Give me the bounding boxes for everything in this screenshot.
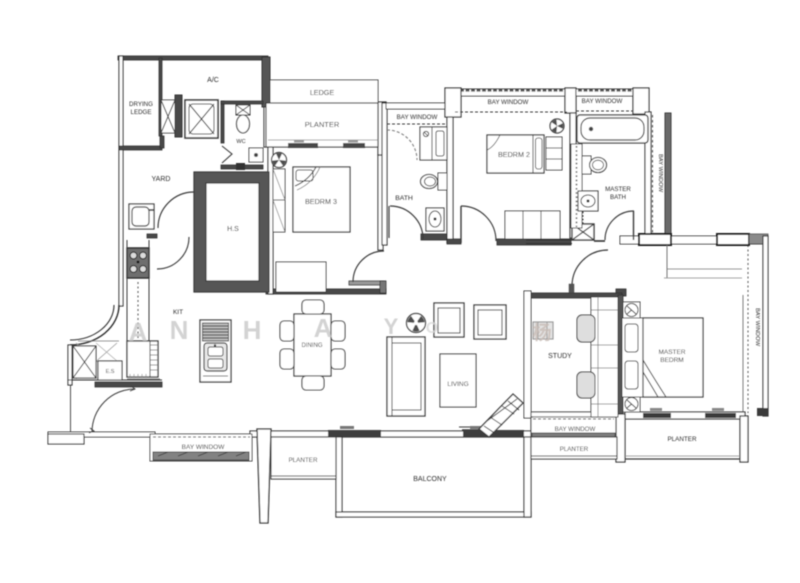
svg-text:MASTER: MASTER xyxy=(658,349,685,356)
svg-text:PLANTER: PLANTER xyxy=(667,436,696,443)
svg-text:BATH: BATH xyxy=(610,194,626,201)
svg-text:BAY WINDOW: BAY WINDOW xyxy=(182,444,226,451)
svg-text:DINING: DINING xyxy=(302,343,323,349)
svg-text:STUDY: STUDY xyxy=(548,353,572,360)
svg-text:A: A xyxy=(314,313,333,343)
svg-text:LEDGE: LEDGE xyxy=(310,88,335,97)
svg-text:H.S: H.S xyxy=(227,226,239,233)
svg-text:LEDGE: LEDGE xyxy=(131,109,152,116)
svg-text:A: A xyxy=(129,317,148,347)
svg-text:MASTER: MASTER xyxy=(605,186,631,193)
svg-text:BEDRM: BEDRM xyxy=(660,357,683,364)
svg-text:BATH: BATH xyxy=(395,195,413,202)
svg-text:PLANTER: PLANTER xyxy=(560,446,589,453)
svg-text:YARD: YARD xyxy=(152,176,171,183)
svg-text:BAY WINDOW: BAY WINDOW xyxy=(657,154,663,193)
svg-text:E.S: E.S xyxy=(106,369,115,375)
svg-text:H: H xyxy=(243,315,262,345)
svg-text:BEDRM 3: BEDRM 3 xyxy=(305,197,337,206)
svg-text:KIT: KIT xyxy=(173,309,183,316)
svg-text:杨: 杨 xyxy=(532,321,551,344)
svg-text:BAY WINDOW: BAY WINDOW xyxy=(754,308,760,347)
svg-text:Y: Y xyxy=(384,314,399,339)
svg-text:BAY WINDOW: BAY WINDOW xyxy=(582,98,623,105)
svg-text:O: O xyxy=(426,320,438,337)
svg-text:N: N xyxy=(170,315,189,345)
svg-text:BAY WINDOW: BAY WINDOW xyxy=(488,99,529,106)
svg-text:A/C: A/C xyxy=(207,77,219,84)
svg-text:BAY WINDOW: BAY WINDOW xyxy=(555,426,596,433)
svg-text:PLANTER: PLANTER xyxy=(288,457,317,464)
svg-text:BALCONY: BALCONY xyxy=(413,476,447,483)
svg-text:DRYING: DRYING xyxy=(129,101,153,108)
svg-text:BEDRM 2: BEDRM 2 xyxy=(498,150,530,159)
svg-text:PLANTER: PLANTER xyxy=(305,120,340,129)
svg-text:BAY WINDOW: BAY WINDOW xyxy=(397,114,438,121)
svg-text:WC: WC xyxy=(236,139,245,145)
svg-text:LIVING: LIVING xyxy=(447,381,468,388)
